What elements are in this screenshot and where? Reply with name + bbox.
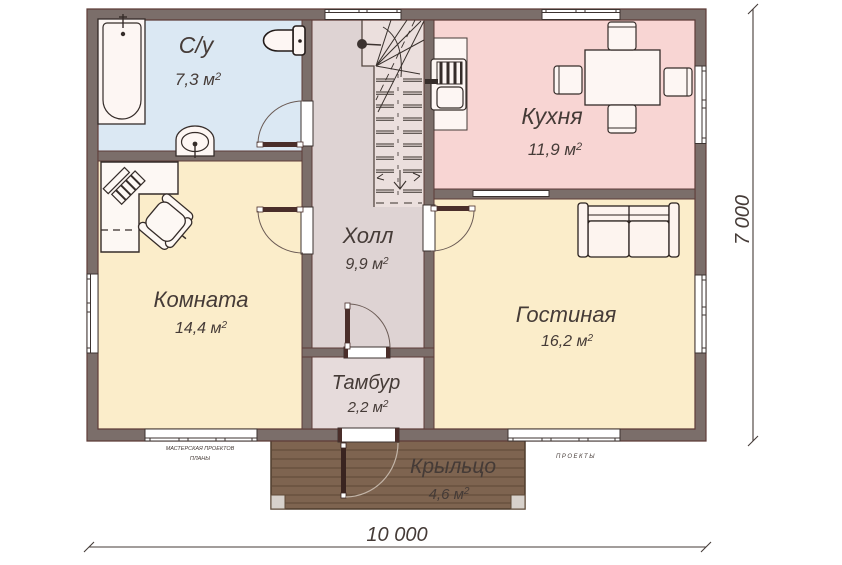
svg-text:Тамбур: Тамбур: [332, 372, 401, 394]
svg-text:7 000: 7 000: [732, 195, 754, 245]
svg-text:4,6 м2: 4,6 м2: [429, 486, 470, 503]
svg-text:МАСТЕРСКАЯ ПРОЕКТОВ: МАСТЕРСКАЯ ПРОЕКТОВ: [166, 446, 235, 452]
svg-text:Холл: Холл: [342, 223, 394, 248]
svg-text:С/у: С/у: [179, 32, 215, 58]
svg-text:10 000: 10 000: [366, 524, 427, 546]
svg-text:Крыльцо: Крыльцо: [410, 455, 496, 478]
svg-text:2,2 м2: 2,2 м2: [347, 399, 389, 416]
svg-text:11,9 м2: 11,9 м2: [528, 140, 582, 159]
svg-text:ПЛАНЫ: ПЛАНЫ: [190, 456, 210, 462]
svg-text:7,3 м2: 7,3 м2: [175, 70, 221, 89]
svg-text:Гостиная: Гостиная: [516, 302, 617, 327]
svg-text:14,4 м2: 14,4 м2: [175, 320, 228, 337]
svg-text:16,2 м2: 16,2 м2: [541, 333, 594, 350]
svg-text:ПРОЕКТЫ: ПРОЕКТЫ: [556, 454, 596, 460]
svg-text:Комната: Комната: [154, 287, 249, 312]
svg-text:9,9 м2: 9,9 м2: [345, 256, 389, 273]
svg-text:Кухня: Кухня: [521, 103, 582, 129]
